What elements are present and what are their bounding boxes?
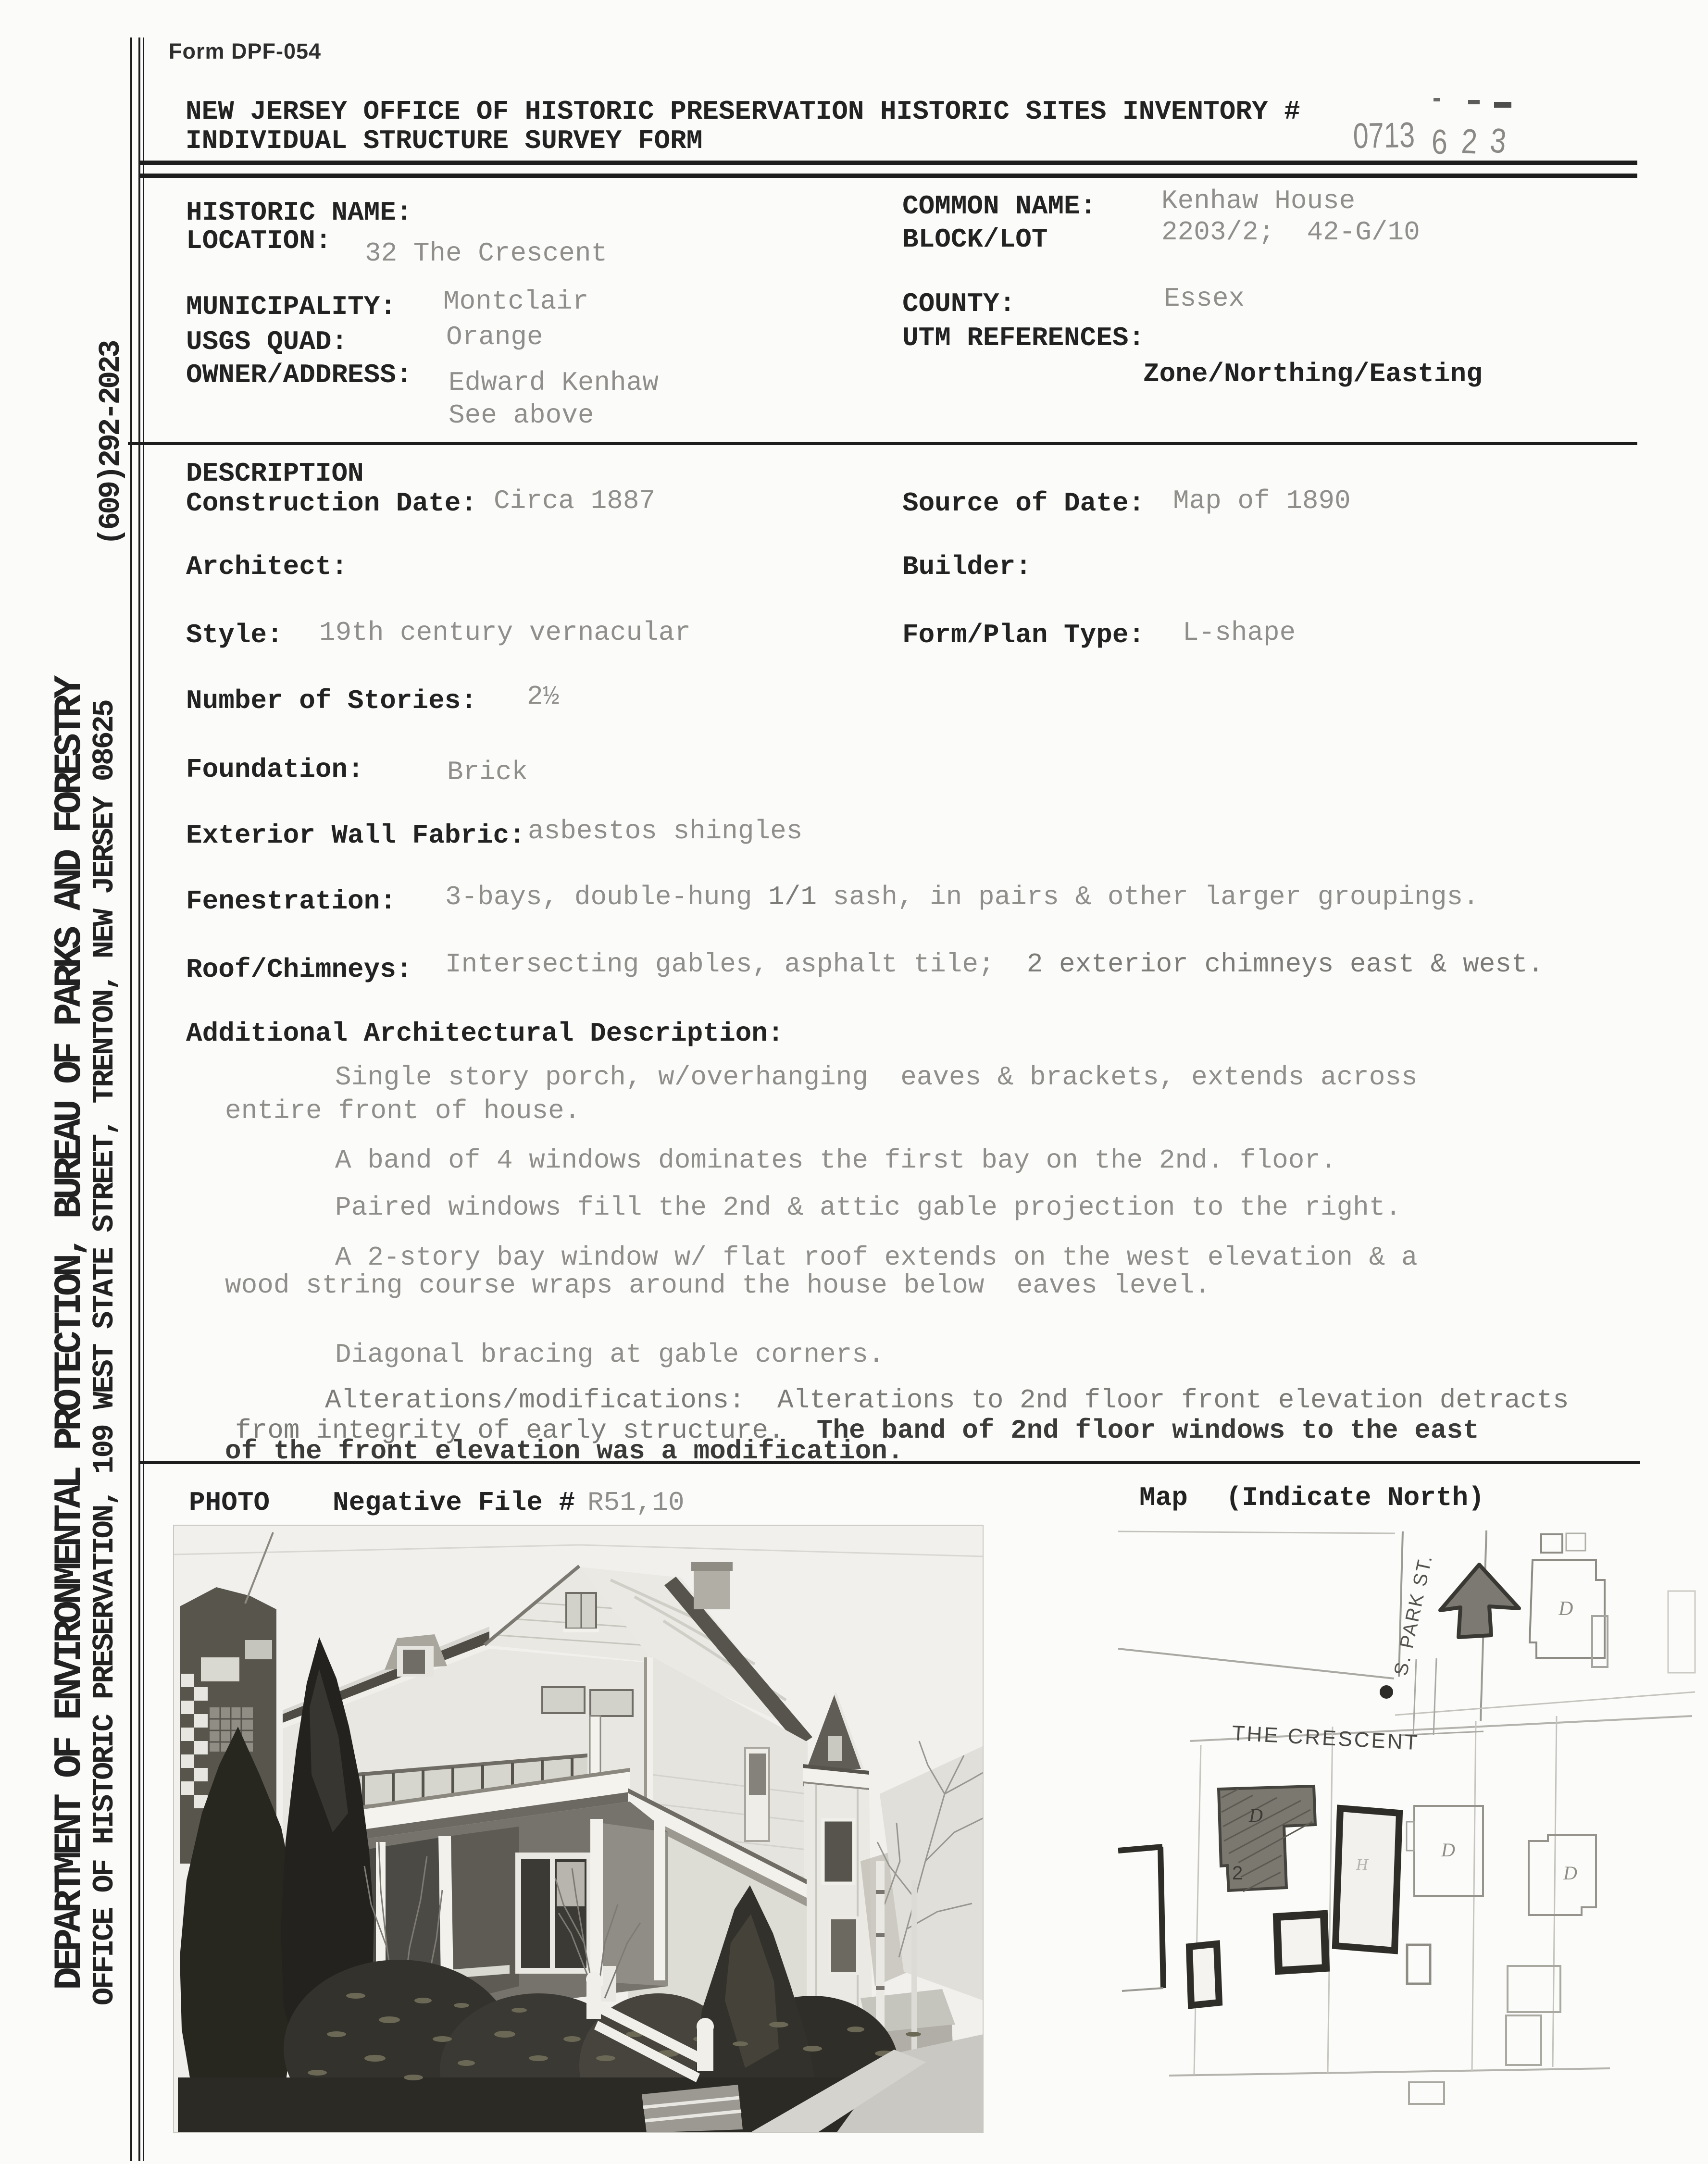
svg-text:D: D — [1563, 1862, 1577, 1884]
svg-text:THE CRESCENT: THE CRESCENT — [1231, 1721, 1420, 1754]
svg-text:2: 2 — [1232, 1863, 1243, 1884]
svg-text:D: D — [1558, 1598, 1573, 1620]
svg-text:D: D — [1441, 1839, 1455, 1861]
svg-text:H: H — [1356, 1856, 1369, 1874]
svg-text:S. PARK ST.: S. PARK ST. — [1390, 1553, 1436, 1678]
svg-text:D: D — [1248, 1804, 1263, 1826]
